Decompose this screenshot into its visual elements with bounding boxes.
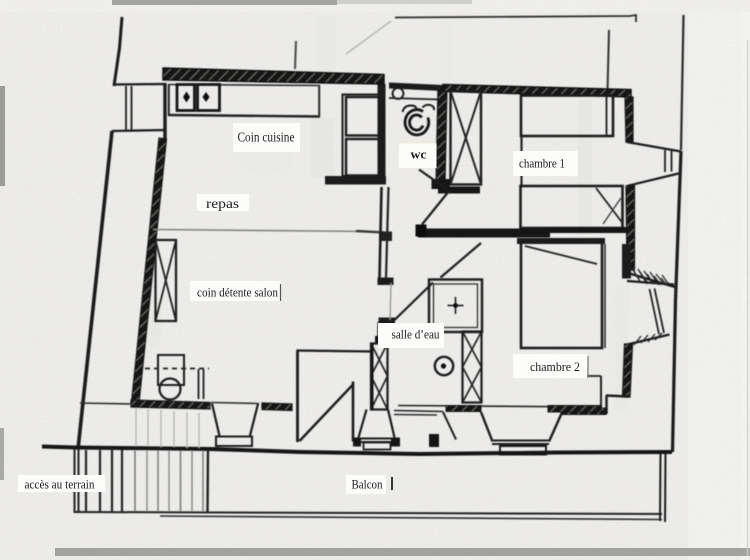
svg-text:repas: repas <box>206 196 239 211</box>
svg-text:Balcon: Balcon <box>352 477 383 492</box>
svg-text:chambre 2: chambre 2 <box>530 359 580 374</box>
svg-text:Coin cuisine: Coin cuisine <box>238 131 295 146</box>
svg-text:wc: wc <box>411 147 427 162</box>
svg-text:accès au terrain: accès au terrain <box>25 478 96 492</box>
svg-text:chambre 1: chambre 1 <box>519 156 565 171</box>
svg-text:salle d’eau: salle d’eau <box>392 327 440 342</box>
svg-text:coin détente salon: coin détente salon <box>197 285 278 300</box>
